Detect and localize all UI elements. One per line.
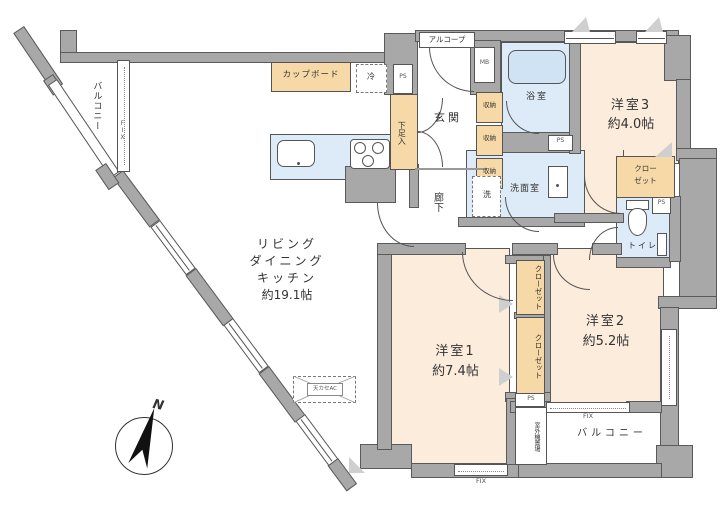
bathtub xyxy=(508,50,566,84)
entrance-label: 玄関 xyxy=(424,112,472,125)
sink-faucet xyxy=(297,162,300,165)
door-arc-ldk xyxy=(377,203,414,247)
washer-label: 洗 xyxy=(478,190,496,199)
stove-burner-2 xyxy=(372,142,384,154)
wall-toilet-bottom xyxy=(616,257,671,268)
bathroom-label: 浴室 xyxy=(517,92,557,102)
fix-bottom-label: FIX xyxy=(466,478,496,485)
ps-bedroom2-label: PS xyxy=(522,396,540,403)
bedroom3-label: 洋室3 約4.0帖 xyxy=(577,96,685,134)
window-diag-1 xyxy=(150,220,195,275)
wall-bottom-right xyxy=(516,463,662,478)
bedroom2-size: 約5.2帖 xyxy=(550,332,662,352)
mb-label: MB xyxy=(476,60,493,67)
compass-north-label: N xyxy=(149,397,168,415)
fix-left-label: FIX xyxy=(118,110,125,150)
ldk-size: 約19.1帖 xyxy=(217,287,357,304)
balcony-railing xyxy=(48,79,120,178)
washroom-label: 洗面室 xyxy=(497,184,553,194)
wall-corridor-bottom-a xyxy=(377,243,466,255)
storage-label-1: 収納 xyxy=(478,102,501,109)
stove-burner-3 xyxy=(362,155,374,167)
ceiling-ac-label: 天カセAC xyxy=(307,386,343,392)
wall-bedroom1-left xyxy=(377,247,392,450)
kitchen-sink xyxy=(277,140,315,167)
shoe-cabinet-label: 下足入 xyxy=(397,105,406,161)
door-arc-toilet xyxy=(589,227,618,260)
window-mark-bedroom3-1 xyxy=(572,17,590,32)
window-bedroom3-2 xyxy=(636,31,667,44)
closet-bedroom2-label: クローゼット xyxy=(518,324,544,388)
bedroom2-label: 洋室2 約5.2帖 xyxy=(550,312,662,352)
wall-bedroom2-bottom-r xyxy=(626,401,662,413)
wall-corridor-bottom-b xyxy=(512,243,558,255)
outdoor-unit-label: 室外機置場 xyxy=(523,412,540,462)
wall-bedroom3-entry-bottom xyxy=(554,213,624,223)
window-bedroom1-bottom xyxy=(454,464,508,476)
balcony-bottom-label: バルコニー xyxy=(560,428,664,440)
stove-burner-1 xyxy=(354,142,366,154)
wall-topright-corner-a xyxy=(664,35,691,81)
alcove-label: アルコープ xyxy=(420,36,474,45)
ps-toilet-label: PS xyxy=(654,200,669,207)
wall-kitchen-return xyxy=(345,166,396,203)
balcony-left-label: バルコニー xyxy=(91,66,101,146)
cupboard-label: カップボード xyxy=(272,71,350,81)
window-diag-2 xyxy=(223,318,268,373)
door-arc-entrance-bottom xyxy=(417,131,443,167)
storage-label-2: 収納 xyxy=(478,135,501,142)
toilet-label: トイレ xyxy=(621,241,665,250)
fix-balcony-label: FIX xyxy=(573,413,603,420)
door-arc-front xyxy=(429,47,474,92)
window-bedroom2-right xyxy=(661,329,677,406)
vanity-faucet xyxy=(556,184,559,187)
wall-right-thick xyxy=(679,158,717,309)
storage-label-3: 収納 xyxy=(478,168,501,175)
floorplan: N バルコニー FIX カップボード 冷 アルコープ MB PS 玄関 下足入 … xyxy=(0,0,720,511)
fridge-label: 冷 xyxy=(361,72,381,81)
ps-bath-label: PS xyxy=(551,138,570,145)
entrance-step-line xyxy=(415,168,487,170)
bedroom3-name: 洋室3 xyxy=(577,96,685,115)
bedroom3-size: 約4.0帖 xyxy=(577,115,685,134)
window-diag-3 xyxy=(295,414,338,466)
ldk-label: リビング ダイニング キッチン 約19.1帖 xyxy=(217,236,357,304)
ps-entrance-label: PS xyxy=(395,74,411,81)
bedroom1-size: 約7.4帖 xyxy=(398,362,513,382)
closet-bedroom1-label: クローゼット xyxy=(518,264,544,310)
bedroom2-name: 洋室2 xyxy=(550,312,662,332)
corridor-label: 廊下 xyxy=(431,183,443,221)
toilet-bowl xyxy=(628,208,647,236)
wall-ldk-corridor xyxy=(409,164,419,208)
window-bedroom3-1 xyxy=(564,31,616,44)
wall-diag-1 xyxy=(113,170,160,228)
closet-bedroom3-label: クロー ゼット xyxy=(620,163,671,187)
bedroom1-name: 洋室1 xyxy=(398,342,513,362)
ldk-name: リビング ダイニング キッチン xyxy=(217,236,357,287)
window-mark-bedroom3-2 xyxy=(645,17,663,32)
bedroom1-label: 洋室1 約7.4帖 xyxy=(398,342,513,382)
